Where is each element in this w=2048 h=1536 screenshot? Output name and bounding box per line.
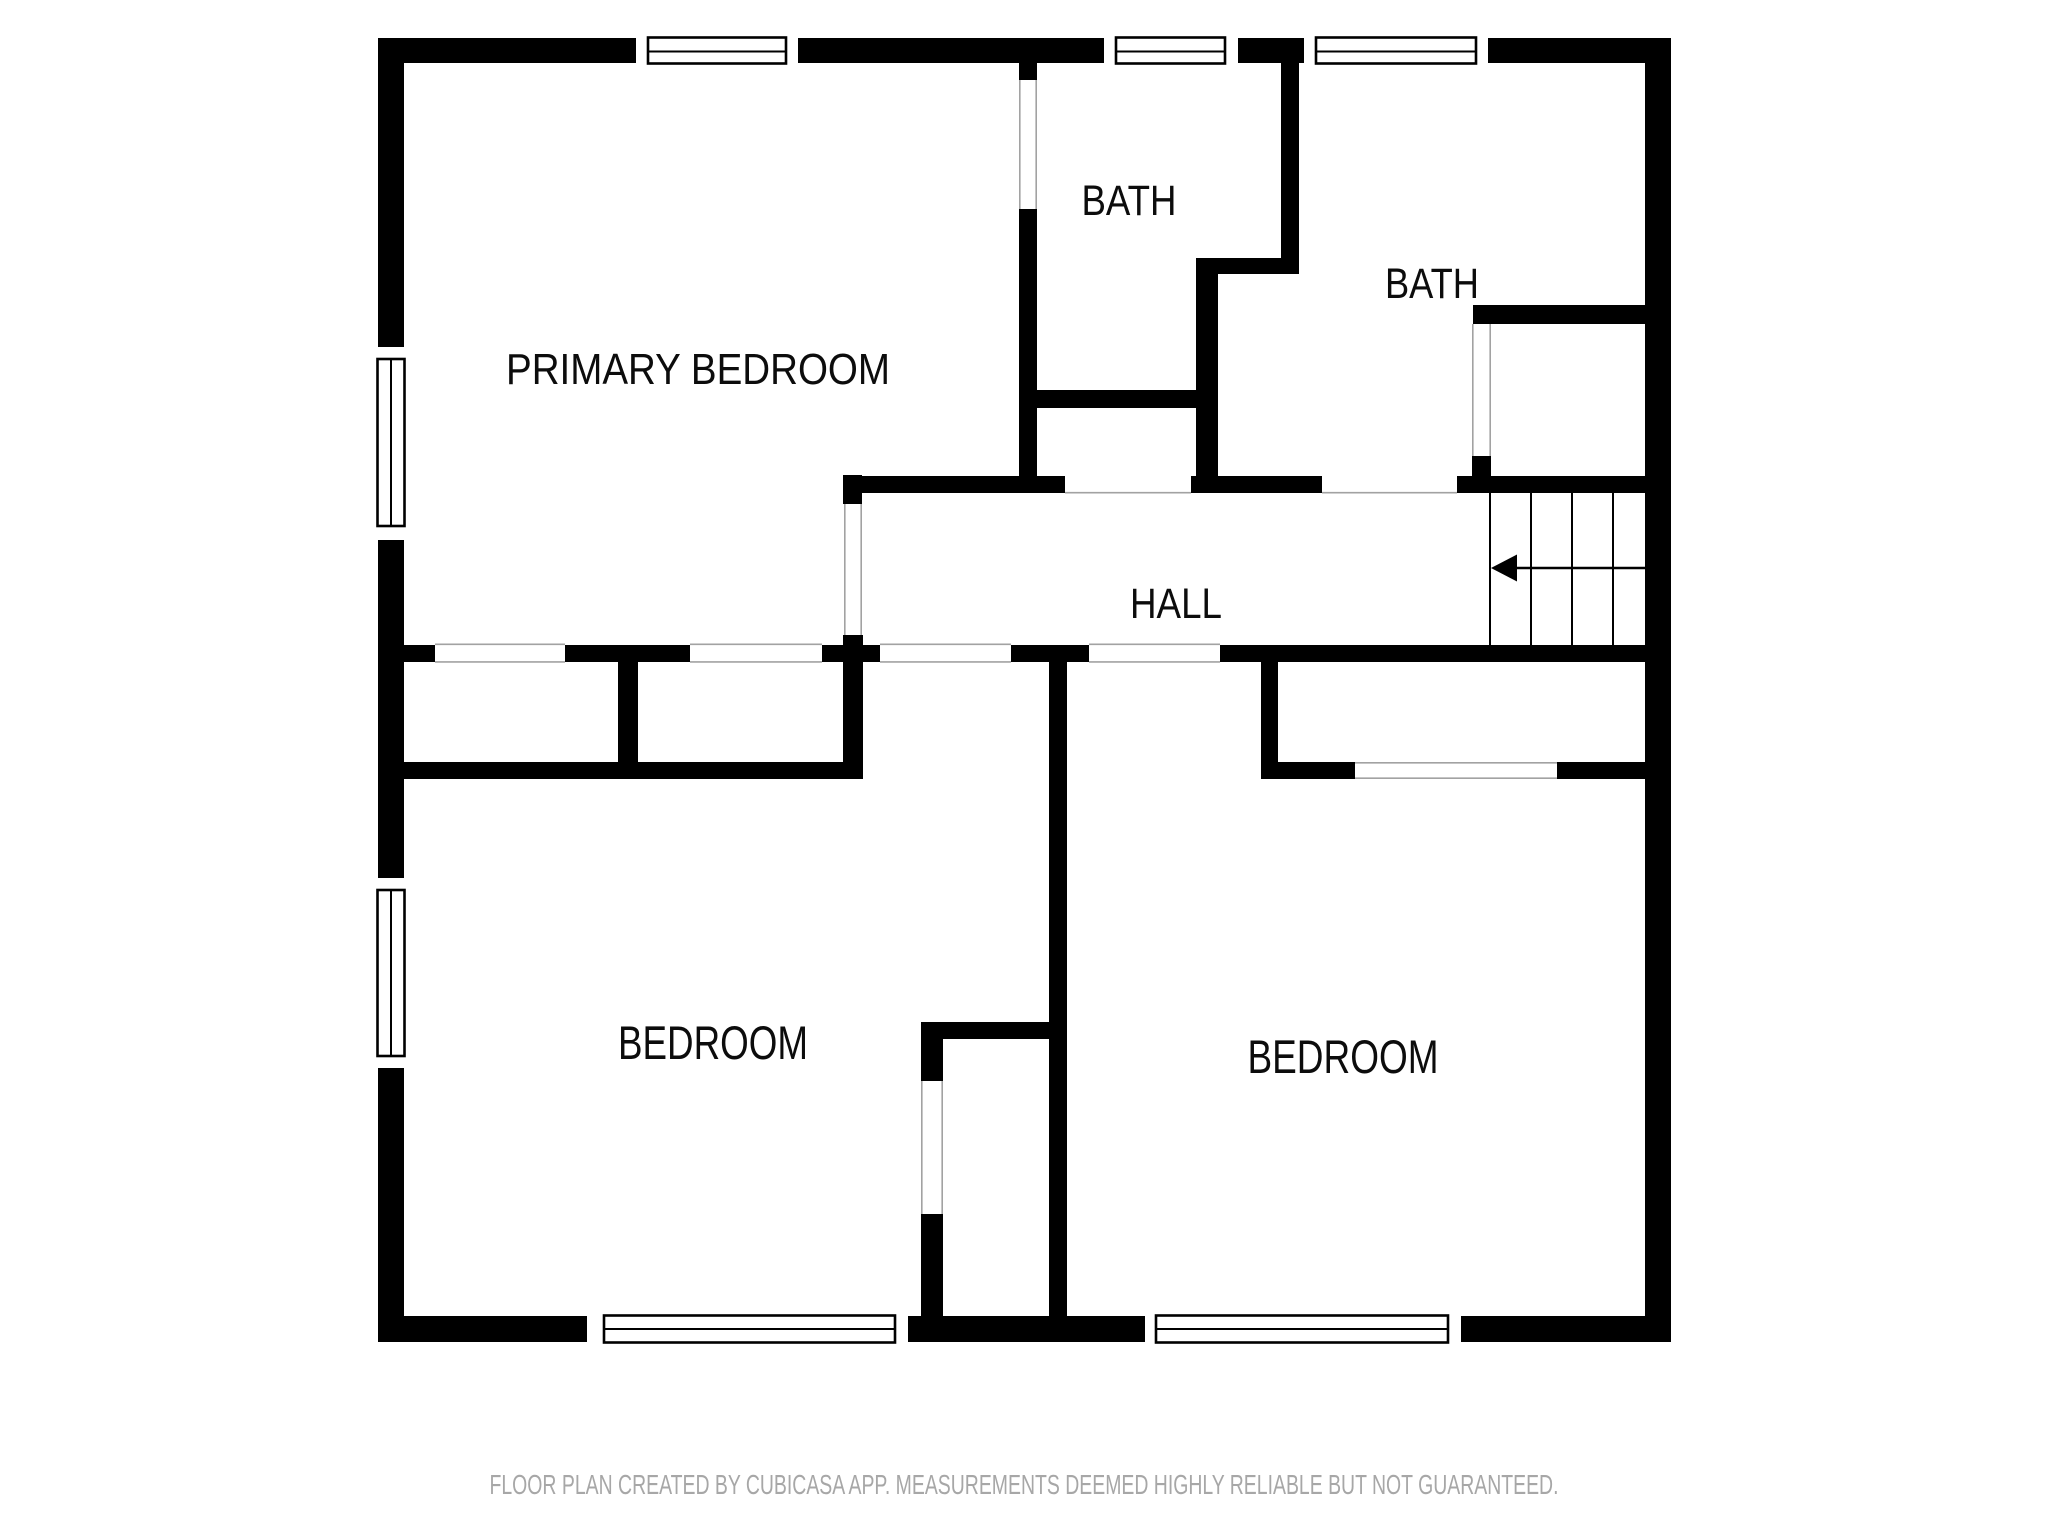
- svg-text:BATH: BATH: [1385, 260, 1479, 308]
- svg-text:BATH: BATH: [1082, 177, 1177, 225]
- svg-text:FLOOR PLAN CREATED BY CUBICASA: FLOOR PLAN CREATED BY CUBICASA APP. MEAS…: [490, 1469, 1559, 1500]
- svg-text:PRIMARY BEDROOM: PRIMARY BEDROOM: [506, 345, 890, 394]
- svg-text:HALL: HALL: [1130, 580, 1222, 628]
- svg-text:BEDROOM: BEDROOM: [1248, 1030, 1439, 1083]
- svg-text:BEDROOM: BEDROOM: [618, 1016, 808, 1069]
